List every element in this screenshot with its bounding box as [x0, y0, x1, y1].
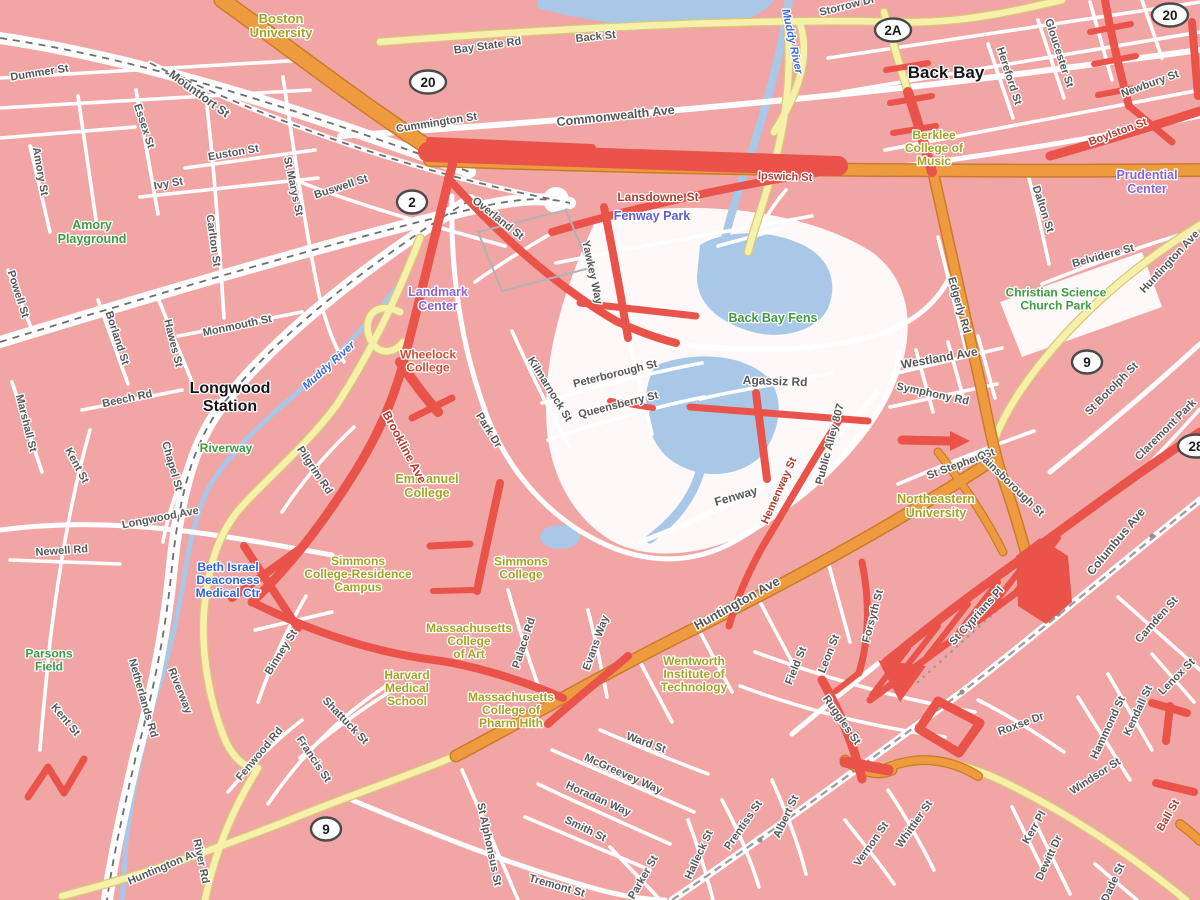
- route-shield-20: 20: [410, 71, 446, 94]
- route-shield-number: 20: [420, 75, 435, 90]
- map-label-beth-israel-deaconess-medical-ctr: Beth IsraelDeaconessMedical Ctr: [196, 560, 261, 600]
- map-label-christian-science-church-park: Christian ScienceChurch Park: [1006, 285, 1107, 312]
- route-shield-number: 28: [1188, 439, 1200, 454]
- route-shield-2A: 2A: [875, 19, 911, 42]
- map-canvas[interactable]: BostonUniversityAmoryPlaygroundBack Bay …: [0, 0, 1200, 900]
- route-shield-number: 9: [322, 822, 330, 837]
- route-shield-28: 28: [1178, 435, 1200, 458]
- boston-traffic-map[interactable]: BostonUniversityAmoryPlaygroundBack Bay …: [0, 0, 1200, 900]
- route-shield-number: 2: [408, 195, 416, 210]
- map-label-riverway: Riverway: [200, 441, 253, 455]
- map-label-agassiz-rd: Agassiz Rd: [743, 373, 808, 389]
- map-label-lansdowne-st: Lansdowne St: [617, 190, 698, 204]
- route-shield-9: 9: [1072, 351, 1102, 374]
- route-shield-2: 2: [397, 191, 427, 214]
- route-shield-9: 9: [311, 818, 341, 841]
- map-label-northeastern-university: NortheasternUniversity: [897, 492, 975, 520]
- map-label-wheelock-college: WheelockCollege: [400, 347, 456, 374]
- route-shield-number: 9: [1083, 355, 1091, 370]
- route-shield-number: 20: [1162, 8, 1177, 23]
- map-label-ipswich-st: Ipswich St: [758, 170, 813, 184]
- map-label-harvard-medical-school: HarvardMedicalSchool: [384, 668, 429, 708]
- route-shield-20: 20: [1152, 4, 1188, 27]
- map-label-simmons-college: SimmonsCollege: [494, 554, 548, 581]
- map-label-back-bay: Back Bay: [908, 63, 985, 82]
- map-label-wentworth-institute-of-technology: WentworthInstitute ofTechnology: [661, 654, 728, 694]
- map-label-back-bay-fens: Back Bay Fens: [729, 311, 818, 325]
- route-shield-number: 2A: [884, 23, 902, 38]
- map-label-fenway-park: Fenway Park: [614, 209, 690, 223]
